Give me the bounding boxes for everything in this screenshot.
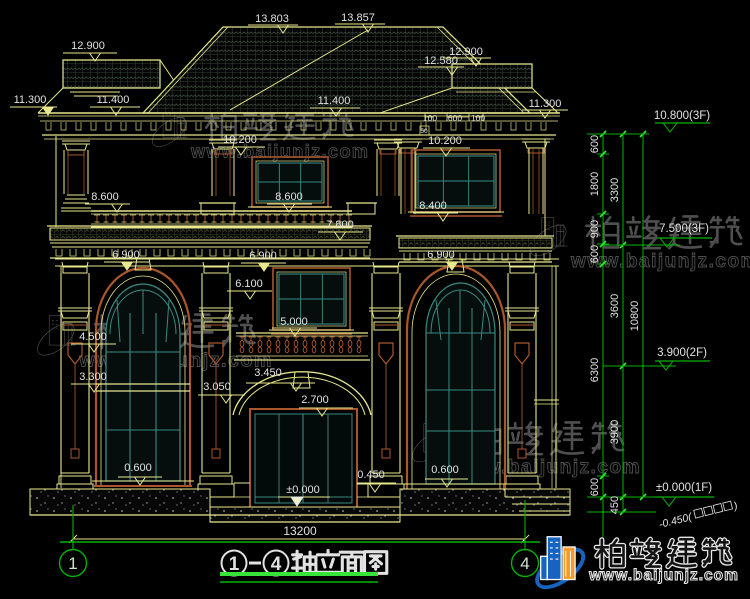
svg-text:1: 1 xyxy=(68,554,77,573)
svg-text:1800: 1800 xyxy=(589,172,601,196)
svg-text:0.600: 0.600 xyxy=(124,462,152,474)
svg-text:±0.000: ±0.000 xyxy=(286,484,320,496)
svg-text:8.600: 8.600 xyxy=(275,191,303,203)
svg-text:10800: 10800 xyxy=(629,301,641,332)
svg-text:3.300: 3.300 xyxy=(79,371,107,383)
svg-text:6.900: 6.900 xyxy=(427,249,455,261)
svg-text:6.900: 6.900 xyxy=(249,250,277,262)
svg-text:600: 600 xyxy=(589,245,601,263)
svg-text:0.450: 0.450 xyxy=(357,469,385,481)
svg-text:0.600: 0.600 xyxy=(431,464,459,476)
svg-text:4: 4 xyxy=(271,554,282,575)
svg-text:4.500: 4.500 xyxy=(79,331,107,343)
svg-text:600: 600 xyxy=(448,113,462,123)
svg-text:12.900: 12.900 xyxy=(449,46,483,58)
svg-text:8.400: 8.400 xyxy=(419,200,447,212)
svg-text:600: 600 xyxy=(589,478,601,496)
svg-text:11.300: 11.300 xyxy=(529,98,562,110)
svg-text:3300: 3300 xyxy=(609,178,621,202)
svg-text:11.400: 11.400 xyxy=(97,94,130,106)
svg-text:8.600: 8.600 xyxy=(91,191,119,203)
svg-text:13.803: 13.803 xyxy=(255,13,289,25)
svg-text:10.200: 10.200 xyxy=(223,134,257,146)
svg-text:600: 600 xyxy=(589,135,601,153)
svg-text:3.050: 3.050 xyxy=(203,381,231,393)
svg-text:2.700: 2.700 xyxy=(301,394,329,406)
svg-text:1: 1 xyxy=(229,554,240,575)
svg-text:11.300: 11.300 xyxy=(14,94,47,106)
svg-text:6300: 6300 xyxy=(589,358,601,382)
svg-text:6.900: 6.900 xyxy=(112,249,140,261)
svg-text:7.800: 7.800 xyxy=(326,219,354,231)
svg-text:10.800(3F): 10.800(3F) xyxy=(654,110,710,122)
svg-text:www.baijunjz.com: www.baijunjz.com xyxy=(190,141,369,161)
svg-text:13.857: 13.857 xyxy=(341,12,375,24)
svg-text:13200: 13200 xyxy=(283,524,317,538)
svg-text:11.400: 11.400 xyxy=(318,95,351,107)
svg-text:12.900: 12.900 xyxy=(71,40,105,52)
svg-text:3.450: 3.450 xyxy=(254,367,282,379)
svg-text:50: 50 xyxy=(420,128,428,135)
svg-text:6.100: 6.100 xyxy=(235,278,263,290)
svg-text:4: 4 xyxy=(520,554,529,573)
svg-text:10.200: 10.200 xyxy=(428,135,462,147)
svg-text:450: 450 xyxy=(609,496,621,514)
svg-text:www.baijunjz.com: www.baijunjz.com xyxy=(588,567,739,584)
svg-text:±0.000(1F): ±0.000(1F) xyxy=(656,482,712,494)
svg-text:3.900(2F): 3.900(2F) xyxy=(657,347,707,359)
svg-text:7.500(3F): 7.500(3F) xyxy=(659,223,709,235)
svg-text:3900: 3900 xyxy=(609,420,621,444)
svg-text:900: 900 xyxy=(589,220,601,238)
svg-text:5.000: 5.000 xyxy=(280,316,308,328)
svg-text:3600: 3600 xyxy=(609,294,621,318)
